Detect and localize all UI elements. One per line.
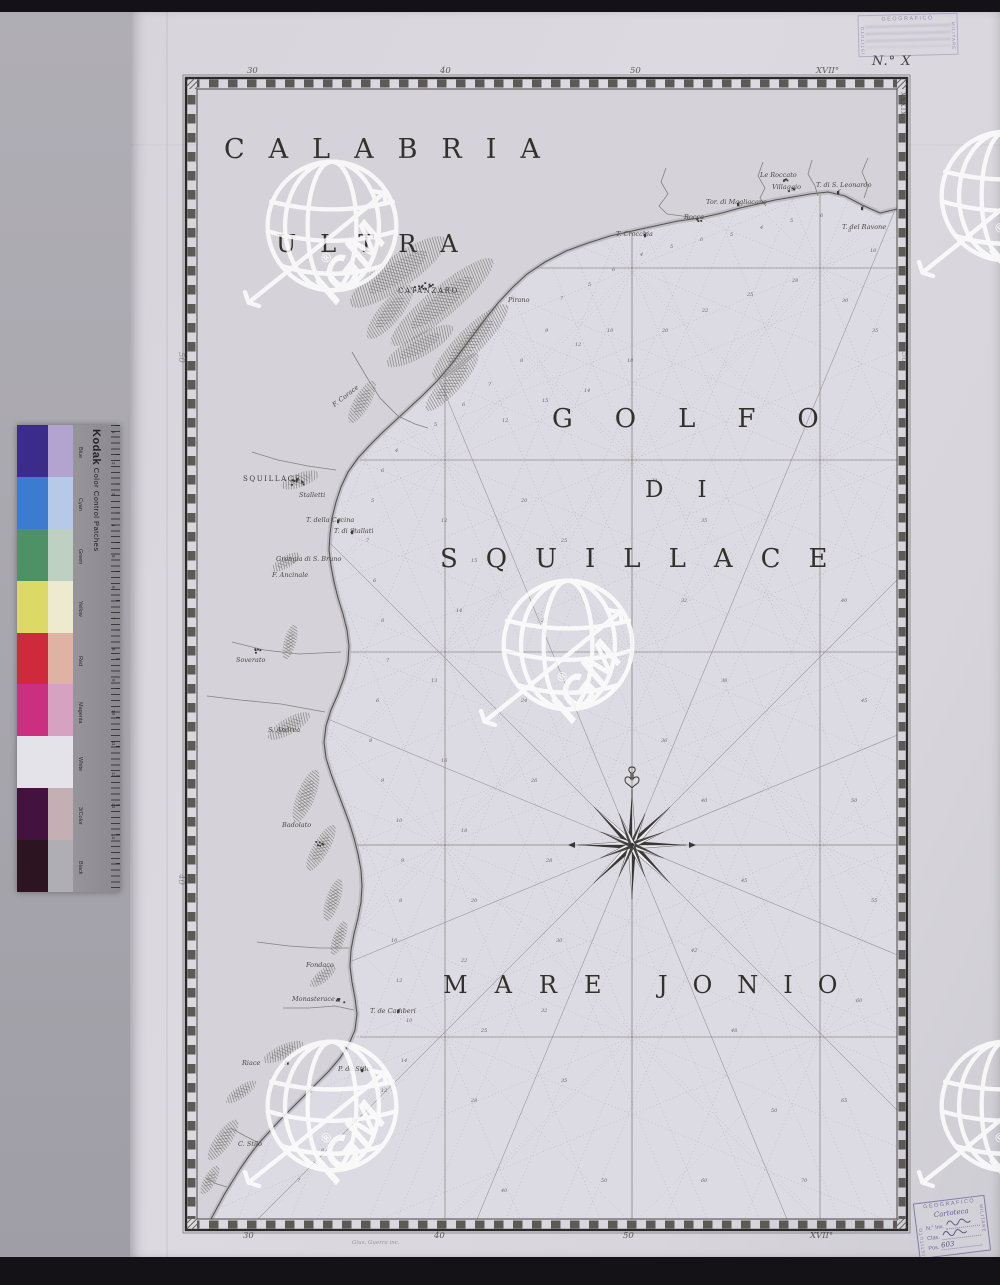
kodak-row bbox=[17, 529, 73, 581]
ruler-number: 11 bbox=[108, 741, 116, 746]
ruler-number: 1 bbox=[108, 431, 116, 434]
ruler-number: 13 bbox=[108, 803, 116, 808]
archive-stamp-top: GEOGRAFICO ISTITUTO MILITARE bbox=[857, 13, 958, 58]
patch-green bbox=[17, 529, 48, 581]
kodak-row bbox=[17, 477, 73, 529]
stamp-illegible-text bbox=[865, 24, 952, 48]
ruler-number: 14 bbox=[108, 834, 116, 839]
kodak-patch-name: Cyan bbox=[74, 481, 86, 529]
kodak-patch-name: Blue bbox=[74, 429, 86, 477]
patch-blue bbox=[17, 425, 48, 477]
patch-3/color-light bbox=[48, 788, 73, 840]
scanned-chart-page: BlueCyanGreenYellowRedMagentaWhite3/Colo… bbox=[0, 0, 1000, 1285]
patch-red-light bbox=[48, 633, 73, 685]
ruler-number: 10 bbox=[108, 710, 116, 715]
archive-stamp-bottom: GEOGRAFICO ISTITUTO MILITARE Cartoteca N… bbox=[913, 1195, 991, 1259]
patch-yellow-light bbox=[48, 581, 73, 633]
kodak-patch-name: Yellow bbox=[74, 585, 86, 633]
kodak-ruler-bar: BlueCyanGreenYellowRedMagentaWhite3/Colo… bbox=[73, 425, 120, 892]
map-sheet bbox=[130, 12, 1000, 1257]
scan-border-bottom bbox=[0, 1257, 1000, 1285]
patch-cyan bbox=[17, 477, 48, 529]
ruler-number: 4 bbox=[108, 524, 116, 527]
kodak-brand: Kodak bbox=[90, 429, 102, 465]
ruler-number: 5 bbox=[108, 555, 116, 558]
patch-blue-light bbox=[48, 425, 73, 477]
ruler-number: 12 bbox=[108, 772, 116, 777]
kodak-row bbox=[17, 425, 73, 477]
ruler-number: 2 bbox=[108, 462, 116, 465]
patch-green-light bbox=[48, 529, 73, 581]
kodak-row bbox=[17, 684, 73, 736]
paper-crease bbox=[130, 144, 1000, 146]
paper-crease bbox=[166, 12, 168, 1257]
kodak-patch-name: White bbox=[74, 740, 86, 788]
kodak-row bbox=[17, 633, 73, 685]
ruler-number: 9 bbox=[108, 679, 116, 682]
kodak-patch-name: Black bbox=[74, 844, 86, 892]
kodak-title-text: Color Control Patches bbox=[92, 468, 101, 552]
kodak-ruler: 1234567891011121314 bbox=[107, 425, 120, 892]
patch-white-light bbox=[48, 736, 73, 788]
kodak-patch-name: Green bbox=[74, 533, 86, 581]
ruler-number: 7 bbox=[108, 617, 116, 620]
patch-3/color bbox=[17, 788, 48, 840]
scan-border-top bbox=[0, 0, 1000, 12]
stamp-org-top: GEOGRAFICO bbox=[859, 15, 957, 24]
kodak-patch-name: Red bbox=[74, 637, 86, 685]
kodak-row bbox=[17, 788, 73, 840]
patch-magenta-light bbox=[48, 684, 73, 736]
kodak-strip-title: Kodak Color Control Patches bbox=[86, 429, 106, 892]
stamp-fields: N.° Inv.Clas.Pos.603 bbox=[925, 1216, 982, 1252]
patch-magenta bbox=[17, 684, 48, 736]
patch-yellow bbox=[17, 581, 48, 633]
patch-white bbox=[17, 736, 48, 788]
ruler-number: 6 bbox=[108, 586, 116, 589]
patch-black-light bbox=[48, 840, 73, 892]
stamp-org-right: MILITARE bbox=[951, 22, 957, 52]
ruler-number: 3 bbox=[108, 493, 116, 496]
kodak-row bbox=[17, 840, 73, 892]
kodak-patch-name: 3/Color bbox=[74, 792, 86, 840]
patch-cyan-light bbox=[48, 477, 73, 529]
kodak-patches bbox=[17, 425, 73, 892]
ruler-number: 8 bbox=[108, 648, 116, 651]
stamp-field-label: Pos. bbox=[928, 1245, 940, 1252]
kodak-color-strip: BlueCyanGreenYellowRedMagentaWhite3/Colo… bbox=[17, 425, 120, 892]
kodak-patch-name: Magenta bbox=[74, 689, 86, 737]
patch-black bbox=[17, 840, 48, 892]
patch-red bbox=[17, 633, 48, 685]
handwritten-scribble bbox=[941, 1226, 968, 1237]
kodak-row bbox=[17, 736, 73, 788]
kodak-row bbox=[17, 581, 73, 633]
